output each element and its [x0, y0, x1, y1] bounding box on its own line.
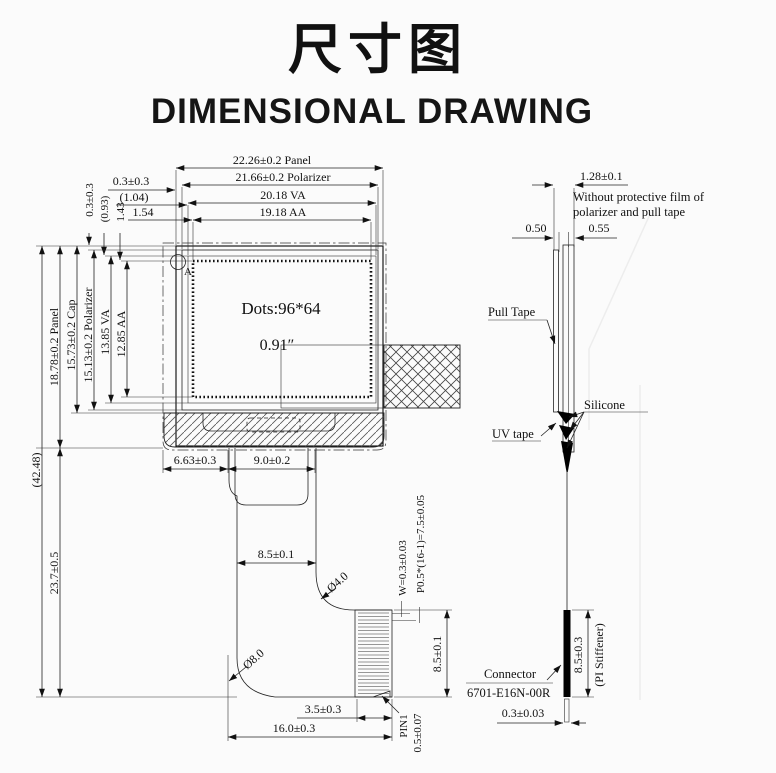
dim-pin1-label: PIN1	[398, 714, 410, 737]
active-area-outline	[193, 261, 371, 397]
side-note-line2: polarizer and pull tape	[573, 205, 686, 219]
side-labels: Pull Tape Silicone UV tape Connector 670…	[466, 305, 648, 700]
dim-polarizer-width: 21.66±0.2 Polarizer	[236, 170, 331, 184]
titles: 尺寸图 DIMENSIONAL DRAWING	[151, 18, 593, 131]
dim-pin-width: W=0.3±0.03	[397, 540, 409, 596]
dim-tape-thickness: 0.50	[526, 221, 547, 235]
side-view: 1.28±0.1 Without protective film of pola…	[466, 169, 705, 723]
dim-pin-pitch: P0.5*(16-1)=7.5±0.05	[415, 494, 427, 593]
dim-connector-height: 8.5±0.1	[430, 636, 444, 673]
dim-v-va: (0.93)	[99, 195, 111, 222]
dim-v-offset: 0.3±0.3	[84, 183, 96, 217]
dim-panel-height: 18.78±0.2 Panel	[47, 307, 61, 386]
connector-pins	[358, 613, 389, 694]
dim-total-width: 16.0±0.3	[273, 721, 316, 735]
dim-tail: 3.5±0.3	[305, 702, 342, 716]
pin1-notch	[373, 691, 390, 697]
dim-bend-r-small: Ø4.0	[324, 569, 351, 595]
dim-fpc-neck: 8.5±0.1	[258, 547, 295, 561]
fpc-bond-strip	[164, 413, 384, 447]
page-title-english: DIMENSIONAL DRAWING	[151, 92, 593, 131]
side-top-dimensions: 1.28±0.1 Without protective film of pola…	[512, 169, 705, 252]
connector-label: Connector	[484, 667, 537, 681]
page-title-chinese: 尺寸图	[288, 18, 468, 81]
side-note-line1: Without protective film of	[573, 190, 705, 204]
dim-h-va: (1.04)	[120, 190, 149, 204]
dim-fpc-tab: 9.0±0.2	[254, 453, 291, 467]
silicone-blob-3	[561, 441, 573, 472]
front-view: A Dots:96*64 0.91″ 22.26±0.	[29, 153, 460, 753]
uv-tape-label: UV tape	[492, 427, 534, 441]
va-outline	[188, 256, 376, 403]
connector-model-label: 6701-E16N-00R	[467, 686, 551, 700]
dim-v-aa: 1.43	[115, 202, 127, 222]
dim-pin-offset: 0.5±0.07	[412, 713, 424, 753]
connector-stiffener-profile	[564, 610, 571, 697]
dim-h-aa: 1.54	[133, 205, 154, 219]
left-dimensions: (42.48) 18.78±0.2 Panel 23.7±0.5 15.73±0…	[29, 246, 237, 697]
dim-polarizer-height: 15.13±0.2 Polarizer	[81, 288, 95, 383]
fpc-tail-profile	[565, 699, 570, 722]
dim-cap-height: 15.73±0.2 Cap	[64, 300, 78, 371]
dim-stack-thickness: 1.28±0.1	[580, 169, 623, 183]
display-size-label: 0.91″	[260, 337, 295, 354]
dim-fpc-offset: 6.63±0.3	[174, 453, 217, 467]
dim-total-height: (42.48)	[29, 453, 43, 488]
dimensional-drawing-canvas: 尺寸图 DIMENSIONAL DRAWING A Dots:96*64 0.9…	[0, 0, 776, 773]
dim-h-offset: 0.3±0.3	[113, 174, 150, 188]
display-dots-label: Dots:96*64	[241, 299, 321, 318]
crosshatch-block	[384, 345, 460, 408]
bottom-dimensions: 6.63±0.3 9.0±0.2 8.5±0.1 Ø4.0 Ø8.0 W=0.3…	[163, 450, 452, 753]
stiffener-note-label: (PI Stiffener)	[592, 623, 606, 686]
dim-fpc-length: 23.7±0.5	[47, 552, 61, 595]
dim-panel-width: 22.26±0.2 Panel	[233, 153, 312, 167]
dim-aa-height: 12.85 AA	[114, 310, 128, 357]
dim-bend-r-big: Ø8.0	[240, 646, 267, 672]
dim-stiffener-height: 8.5±0.3	[571, 637, 585, 674]
dim-tail-thickness: 0.3±0.03	[502, 706, 545, 720]
pull-tape-label: Pull Tape	[488, 305, 536, 319]
polarizer-outline	[182, 250, 378, 410]
dim-aa-width: 19.18 AA	[260, 205, 307, 219]
silicone-label: Silicone	[584, 398, 625, 412]
dim-panel-thickness: 0.55	[589, 221, 610, 235]
dim-va-height: 13.85 VA	[98, 309, 112, 355]
dim-va-width: 20.18 VA	[260, 188, 306, 202]
connector-block	[355, 610, 392, 697]
silicone-blob-1	[557, 411, 575, 424]
detail-a-label: A	[184, 266, 192, 278]
dimensional-drawing-page: 尺寸图 DIMENSIONAL DRAWING A Dots:96*64 0.9…	[0, 0, 776, 773]
top-dimensions: 22.26±0.2 Panel 21.66±0.2 Polarizer 20.1…	[176, 153, 383, 260]
pull-tape-profile	[554, 250, 559, 412]
